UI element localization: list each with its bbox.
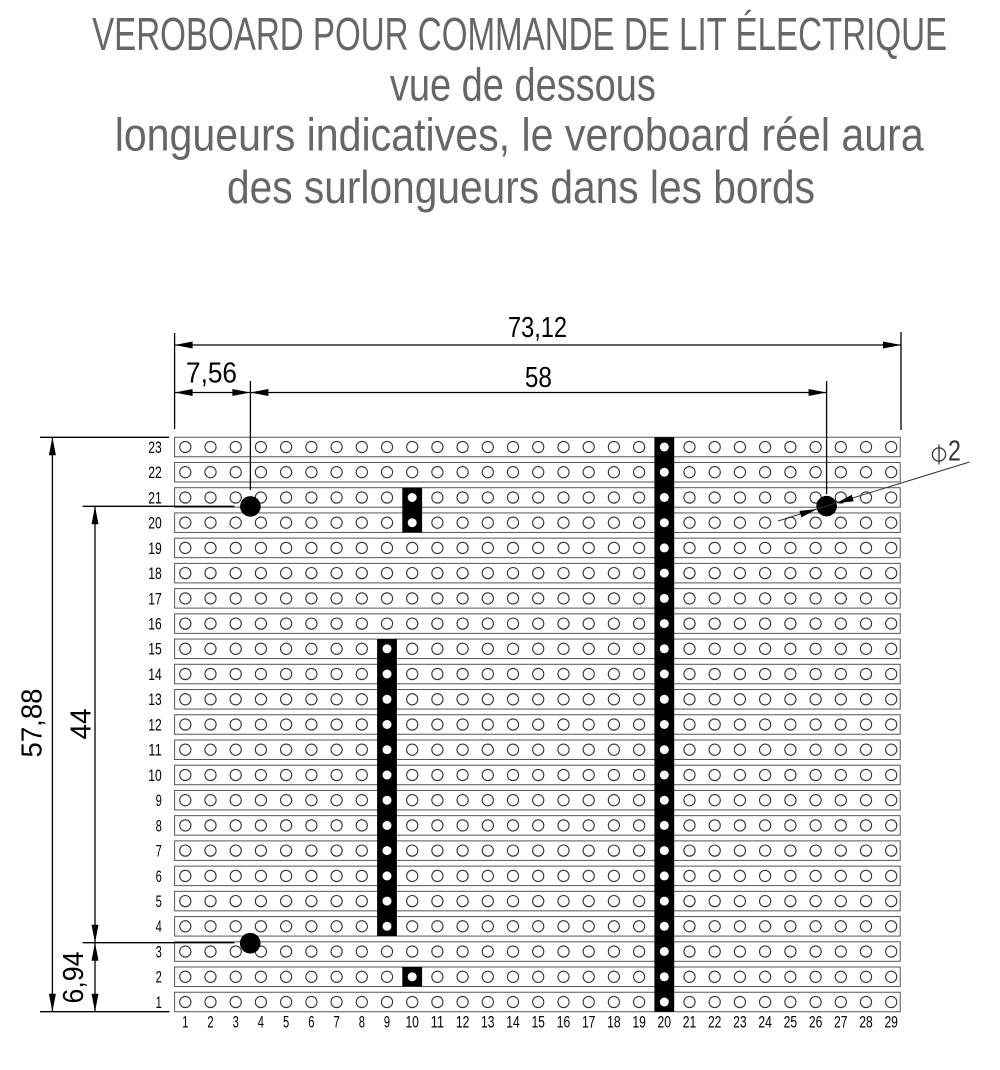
svg-text:11: 11 [431, 1014, 445, 1032]
svg-text:1: 1 [156, 994, 162, 1012]
svg-text:14: 14 [506, 1014, 520, 1032]
svg-text:16: 16 [557, 1014, 571, 1032]
svg-text:12: 12 [148, 716, 162, 734]
svg-text:9: 9 [384, 1014, 390, 1032]
svg-text:VEROBOARD POUR COMMANDE DE LIT: VEROBOARD POUR COMMANDE DE LIT ÉLECTRIQU… [92, 8, 947, 60]
svg-text:18: 18 [607, 1014, 621, 1032]
svg-text:25: 25 [784, 1014, 798, 1032]
svg-text:26: 26 [809, 1014, 823, 1032]
svg-text:8: 8 [156, 817, 162, 835]
svg-text:des surlongueurs dans les bord: des surlongueurs dans les bords [227, 161, 815, 213]
svg-text:73,12: 73,12 [508, 312, 567, 344]
svg-text:6: 6 [156, 868, 162, 886]
svg-text:13: 13 [148, 691, 162, 709]
svg-text:1: 1 [182, 1014, 188, 1032]
svg-text:3: 3 [156, 943, 162, 961]
svg-text:17: 17 [148, 590, 162, 608]
svg-text:13: 13 [481, 1014, 495, 1032]
svg-text:29: 29 [884, 1014, 898, 1032]
svg-text:11: 11 [148, 742, 162, 760]
svg-text:4: 4 [258, 1014, 264, 1032]
svg-text:20: 20 [148, 515, 162, 533]
svg-text:7: 7 [156, 843, 162, 861]
svg-text:5: 5 [156, 893, 162, 911]
svg-text:10: 10 [148, 767, 162, 785]
svg-text:5: 5 [283, 1014, 289, 1032]
svg-text:23: 23 [148, 439, 162, 457]
svg-text:44: 44 [65, 709, 97, 740]
svg-text:4: 4 [156, 918, 162, 936]
svg-text:7,56: 7,56 [186, 358, 237, 390]
svg-text:12: 12 [456, 1014, 470, 1032]
svg-text:6,94: 6,94 [58, 952, 90, 1004]
svg-text:19: 19 [632, 1014, 646, 1032]
svg-text:19: 19 [148, 540, 162, 558]
svg-text:8: 8 [359, 1014, 365, 1032]
svg-text:21: 21 [148, 489, 162, 507]
svg-text:21: 21 [683, 1014, 697, 1032]
svg-text:20: 20 [658, 1014, 672, 1032]
svg-text:58: 58 [525, 362, 552, 394]
svg-text:15: 15 [531, 1014, 545, 1032]
svg-text:2: 2 [948, 434, 961, 467]
svg-text:10: 10 [405, 1014, 419, 1032]
svg-text:15: 15 [148, 641, 162, 659]
svg-text:2: 2 [207, 1014, 213, 1032]
svg-text:57,88: 57,88 [17, 689, 49, 758]
svg-text:22: 22 [148, 464, 162, 482]
svg-text:24: 24 [758, 1014, 772, 1032]
svg-text:3: 3 [233, 1014, 239, 1032]
svg-text:23: 23 [733, 1014, 747, 1032]
svg-text:14: 14 [148, 666, 162, 684]
svg-text:18: 18 [148, 565, 162, 583]
svg-text:9: 9 [156, 792, 162, 810]
svg-text:7: 7 [334, 1014, 340, 1032]
svg-text:16: 16 [148, 616, 162, 634]
svg-text:28: 28 [859, 1014, 873, 1032]
svg-text:2: 2 [156, 969, 162, 987]
svg-text:27: 27 [834, 1014, 848, 1032]
svg-text:6: 6 [308, 1014, 314, 1032]
svg-text:17: 17 [582, 1014, 596, 1032]
svg-text:vue de dessous: vue de dessous [390, 59, 656, 111]
svg-text:22: 22 [708, 1014, 722, 1032]
svg-text:longueurs indicatives, le vero: longueurs indicatives, le veroboard réel… [115, 109, 924, 161]
